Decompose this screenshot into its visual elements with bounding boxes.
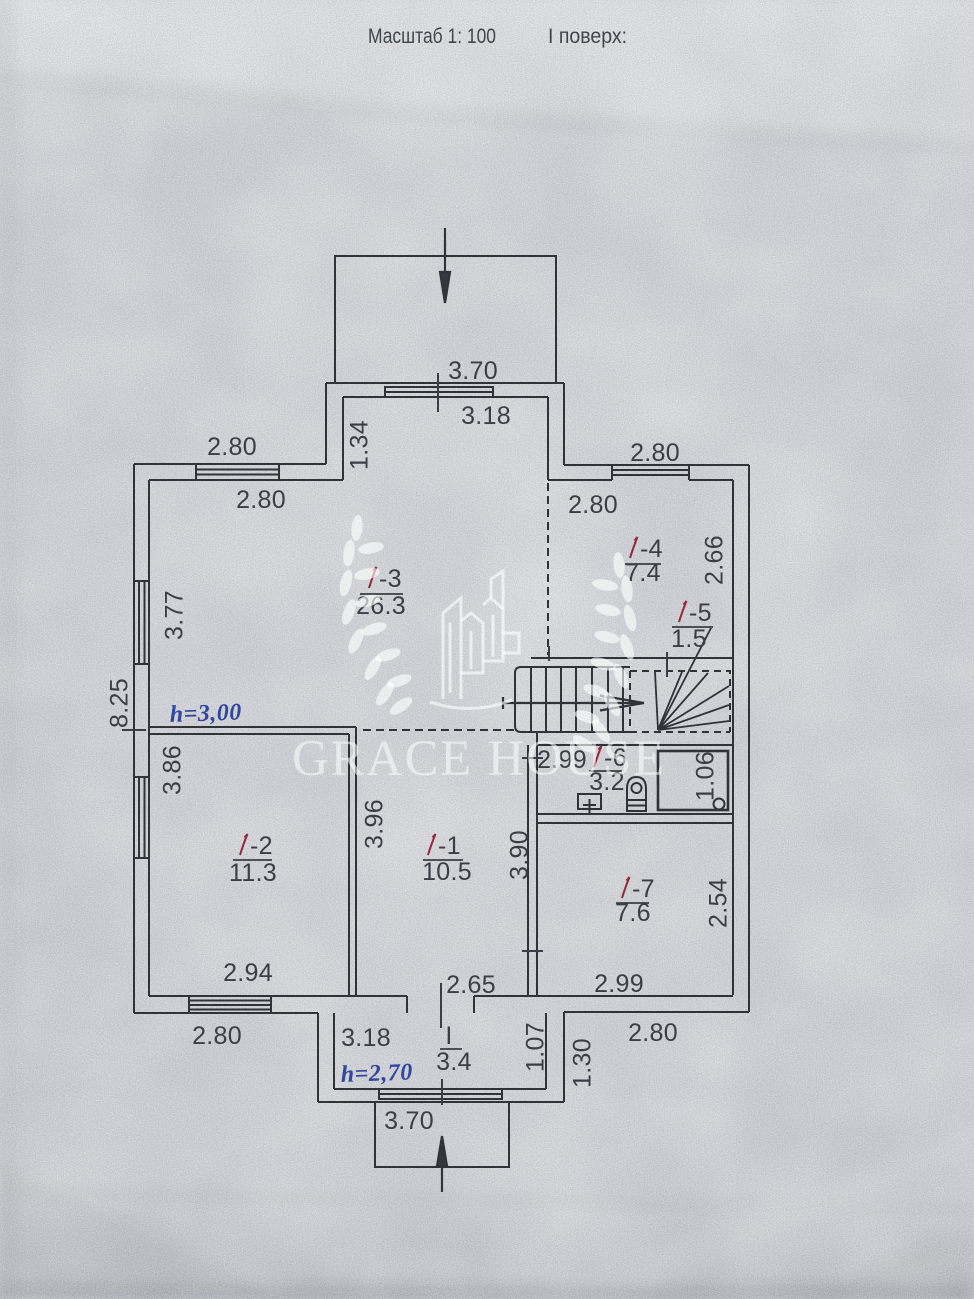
svg-text:Масштаб 1: 100: Масштаб 1: 100 <box>368 24 496 48</box>
svg-text:3.70: 3.70 <box>448 357 498 385</box>
svg-text:-3: -3 <box>379 565 402 593</box>
svg-text:2.65: 2.65 <box>446 971 496 999</box>
svg-text:3.4: 3.4 <box>436 1048 472 1076</box>
svg-text:3.96: 3.96 <box>361 799 389 849</box>
svg-text:-1: -1 <box>438 832 461 860</box>
svg-text:GRACE HOUSE: GRACE HOUSE <box>292 731 666 787</box>
svg-text:2.80: 2.80 <box>568 491 618 519</box>
svg-text:2.80: 2.80 <box>192 1022 242 1050</box>
svg-text:3.70: 3.70 <box>384 1107 434 1135</box>
svg-text:-5: -5 <box>689 599 712 627</box>
svg-text:-2: -2 <box>250 832 273 860</box>
svg-text:11.3: 11.3 <box>229 859 277 887</box>
svg-text:1.5: 1.5 <box>671 625 707 653</box>
svg-text:10.5: 10.5 <box>422 858 472 886</box>
svg-text:7.6: 7.6 <box>615 899 651 927</box>
svg-text:2.54: 2.54 <box>705 878 733 928</box>
svg-text:3.18: 3.18 <box>461 402 511 430</box>
svg-text:1.34: 1.34 <box>346 420 374 470</box>
svg-text:2.66: 2.66 <box>701 535 729 585</box>
svg-text:2.94: 2.94 <box>223 959 273 987</box>
svg-text:2.80: 2.80 <box>628 1019 678 1047</box>
svg-text:8.25: 8.25 <box>106 678 134 728</box>
svg-text:3.90: 3.90 <box>506 830 534 880</box>
svg-text:h=3,00: h=3,00 <box>169 699 242 727</box>
svg-text:3.86: 3.86 <box>159 745 187 795</box>
svg-text:2.80: 2.80 <box>630 439 680 467</box>
svg-text:2.80: 2.80 <box>236 486 286 514</box>
svg-text:1.30: 1.30 <box>569 1038 597 1088</box>
svg-text:3.18: 3.18 <box>341 1024 391 1052</box>
svg-text:3.77: 3.77 <box>161 590 189 640</box>
svg-text:І поверх:: І поверх: <box>548 24 627 48</box>
svg-text:2.99: 2.99 <box>594 970 644 998</box>
svg-text:2.80: 2.80 <box>207 433 257 461</box>
svg-text:1.06: 1.06 <box>692 751 720 801</box>
svg-text:h=2,70: h=2,70 <box>340 1059 413 1087</box>
svg-text:1.07: 1.07 <box>522 1022 550 1072</box>
svg-text:I: I <box>445 1022 452 1050</box>
